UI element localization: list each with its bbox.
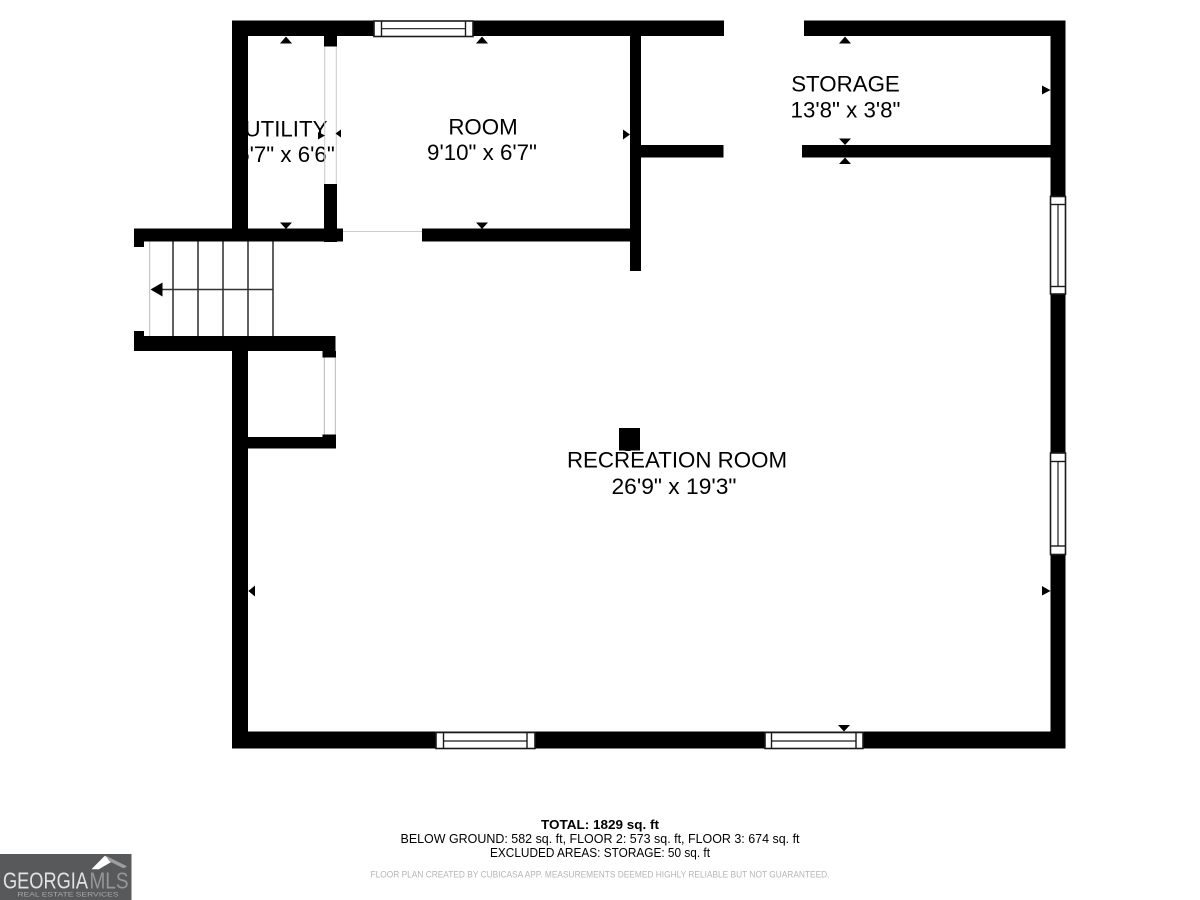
svg-text:26'9" x 19'3": 26'9" x 19'3" [612, 474, 737, 499]
svg-text:MLS: MLS [90, 868, 129, 894]
svg-text:REAL ESTATE SERVICES: REAL ESTATE SERVICES [18, 892, 119, 899]
svg-text:9'10" x 6'7": 9'10" x 6'7" [427, 140, 537, 165]
svg-text:TOTAL: 1829 sq. ft: TOTAL: 1829 sq. ft [541, 818, 660, 832]
svg-text:UTILITY: UTILITY [244, 117, 327, 142]
svg-text:STORAGE: STORAGE [791, 72, 900, 97]
svg-text:GEORGIA: GEORGIA [3, 868, 88, 894]
svg-text:ROOM: ROOM [448, 115, 517, 140]
svg-text:RECREATION ROOM: RECREATION ROOM [567, 448, 787, 473]
svg-text:6'7" x 6'6": 6'7" x 6'6" [237, 142, 334, 167]
svg-text:13'8" x 3'8": 13'8" x 3'8" [791, 98, 901, 123]
svg-text:FLOOR PLAN CREATED BY CUBICASA: FLOOR PLAN CREATED BY CUBICASA APP. MEAS… [371, 870, 830, 881]
svg-text:BELOW GROUND: 582 sq. ft, FLOO: BELOW GROUND: 582 sq. ft, FLOOR 2: 573 s… [401, 832, 801, 846]
svg-text:EXCLUDED AREAS: STORAGE: 50 sq: EXCLUDED AREAS: STORAGE: 50 sq. ft [490, 846, 710, 860]
